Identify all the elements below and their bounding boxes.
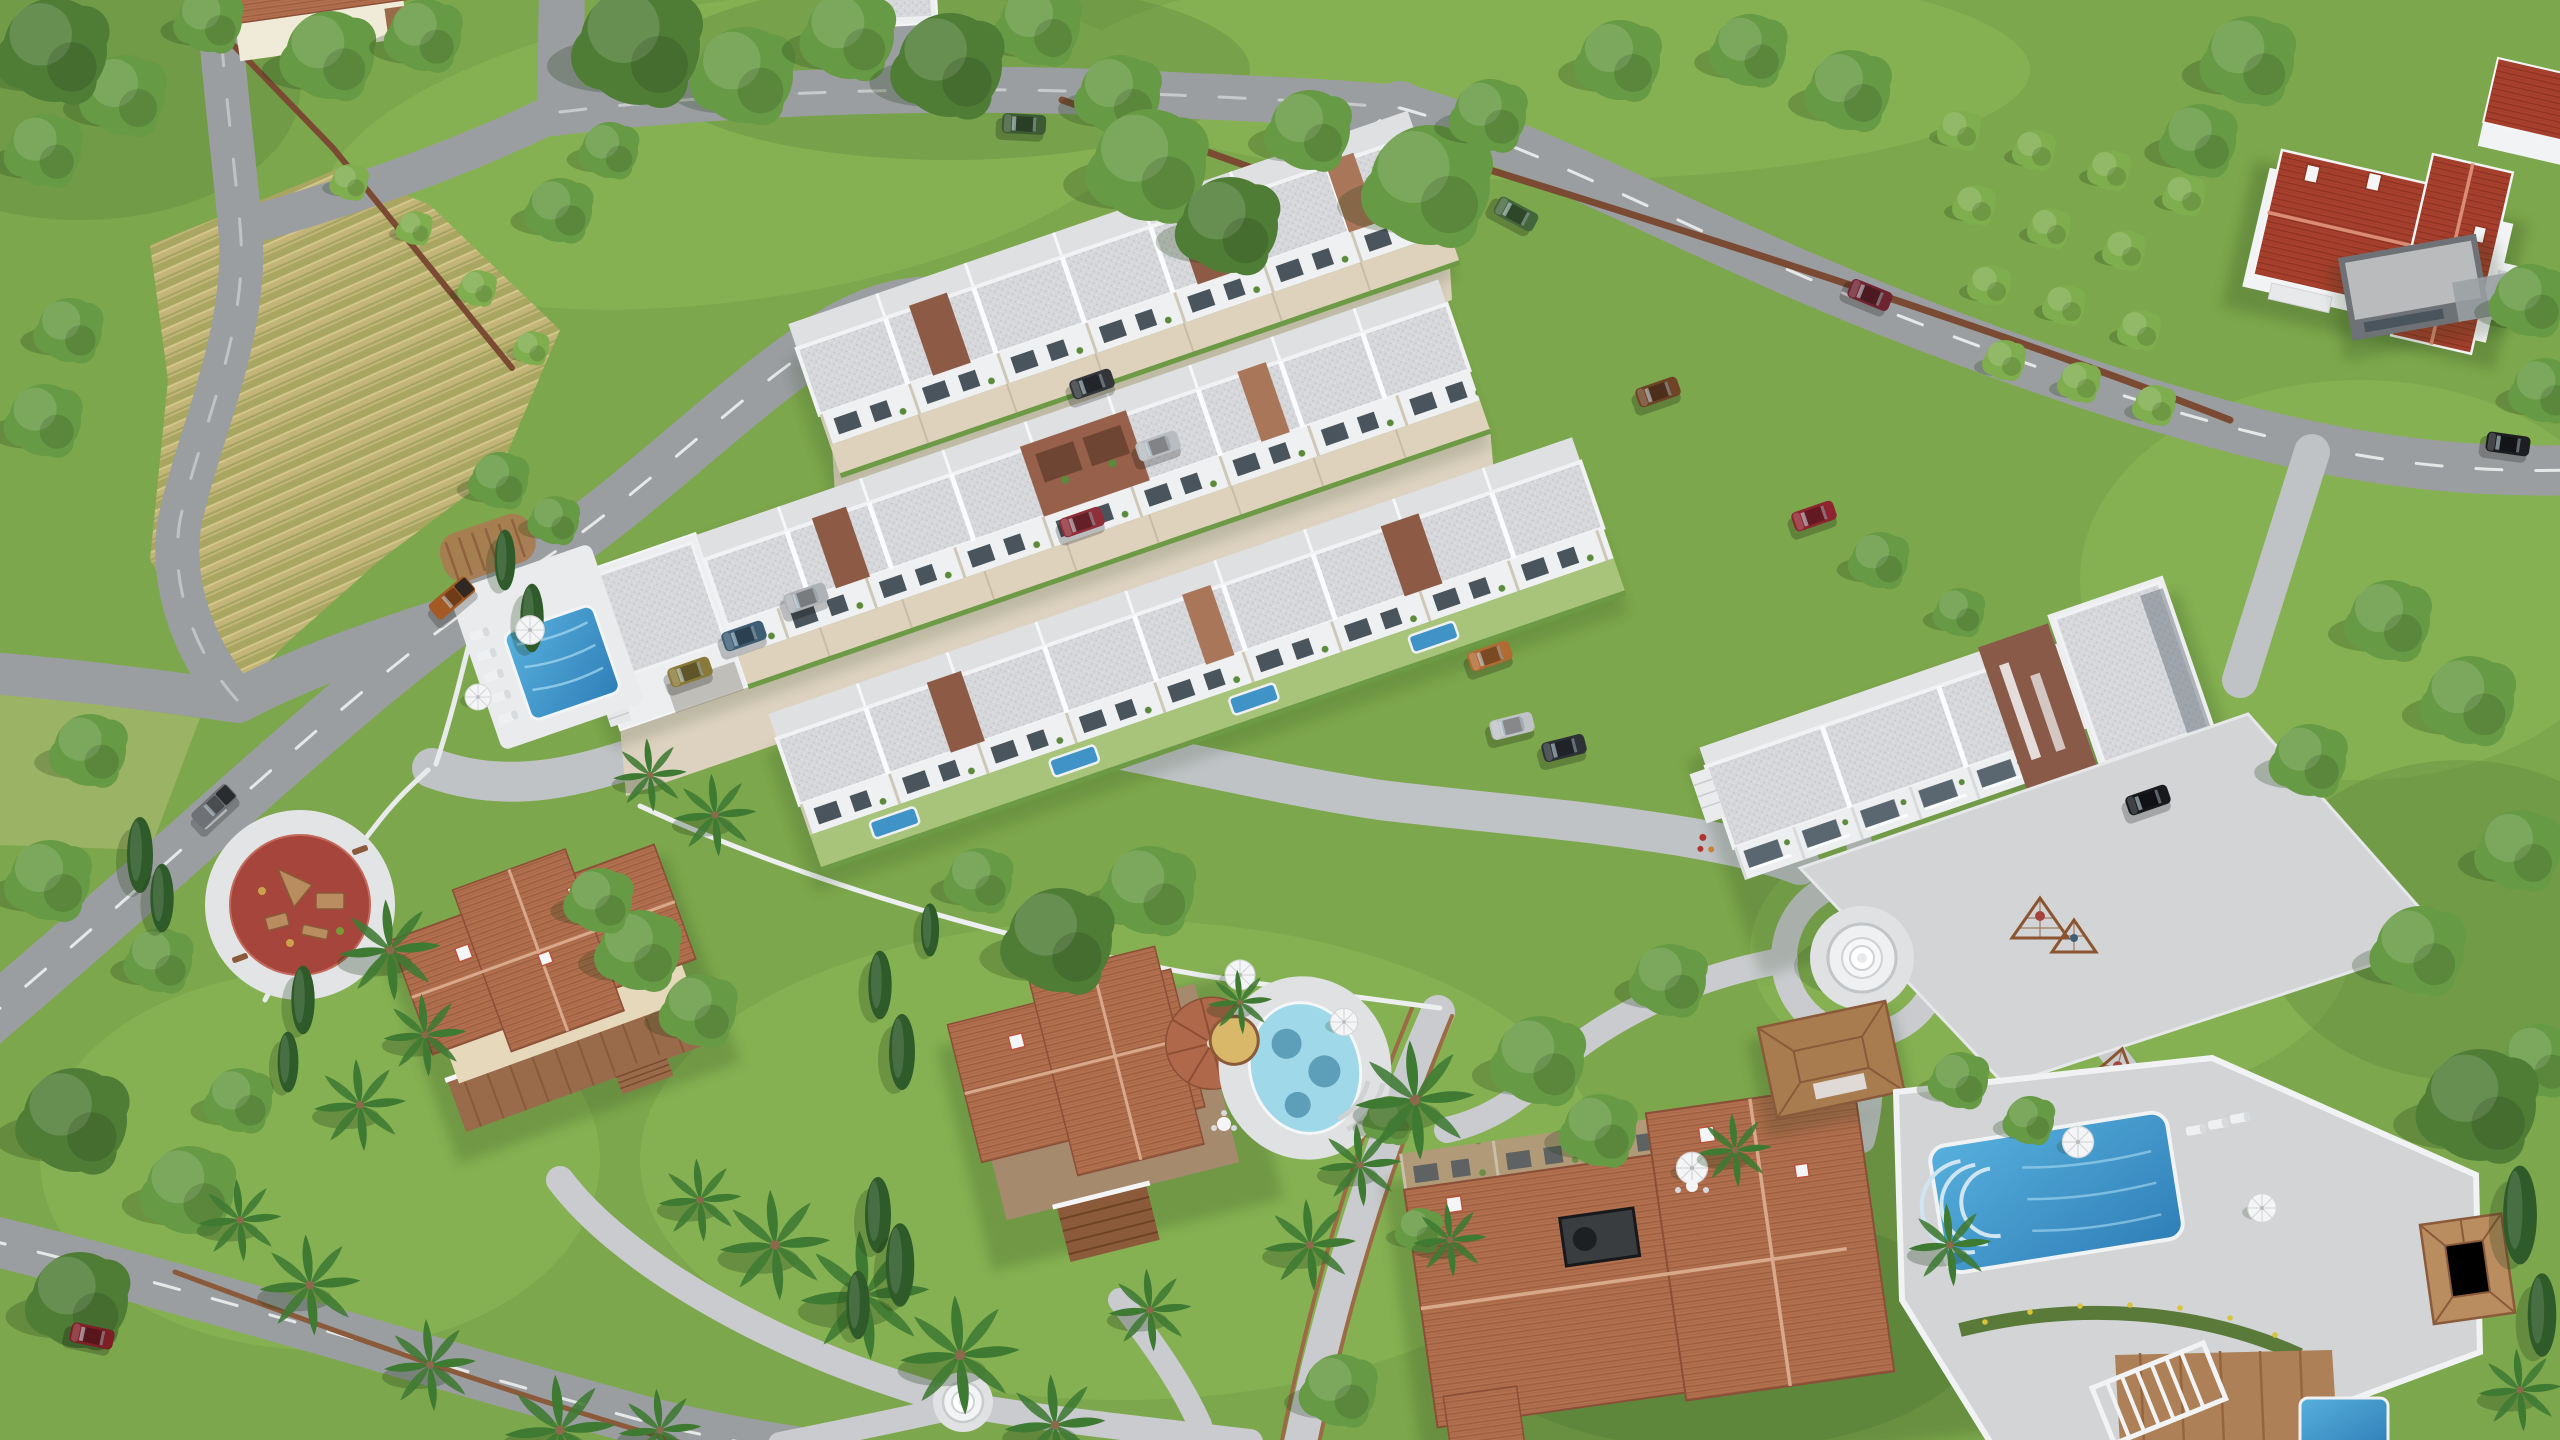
small-pool bbox=[2300, 1398, 2388, 1440]
entrance-porch bbox=[1443, 1386, 1525, 1440]
car bbox=[995, 113, 1046, 143]
roof-terrace bbox=[1560, 1208, 1640, 1266]
left-spur-road bbox=[0, 672, 238, 702]
aerial-render: Aerial 3D render of a suburban residenti… bbox=[0, 0, 2560, 1440]
render-viewport: Aerial 3D render of a suburban residenti… bbox=[0, 0, 2560, 1440]
